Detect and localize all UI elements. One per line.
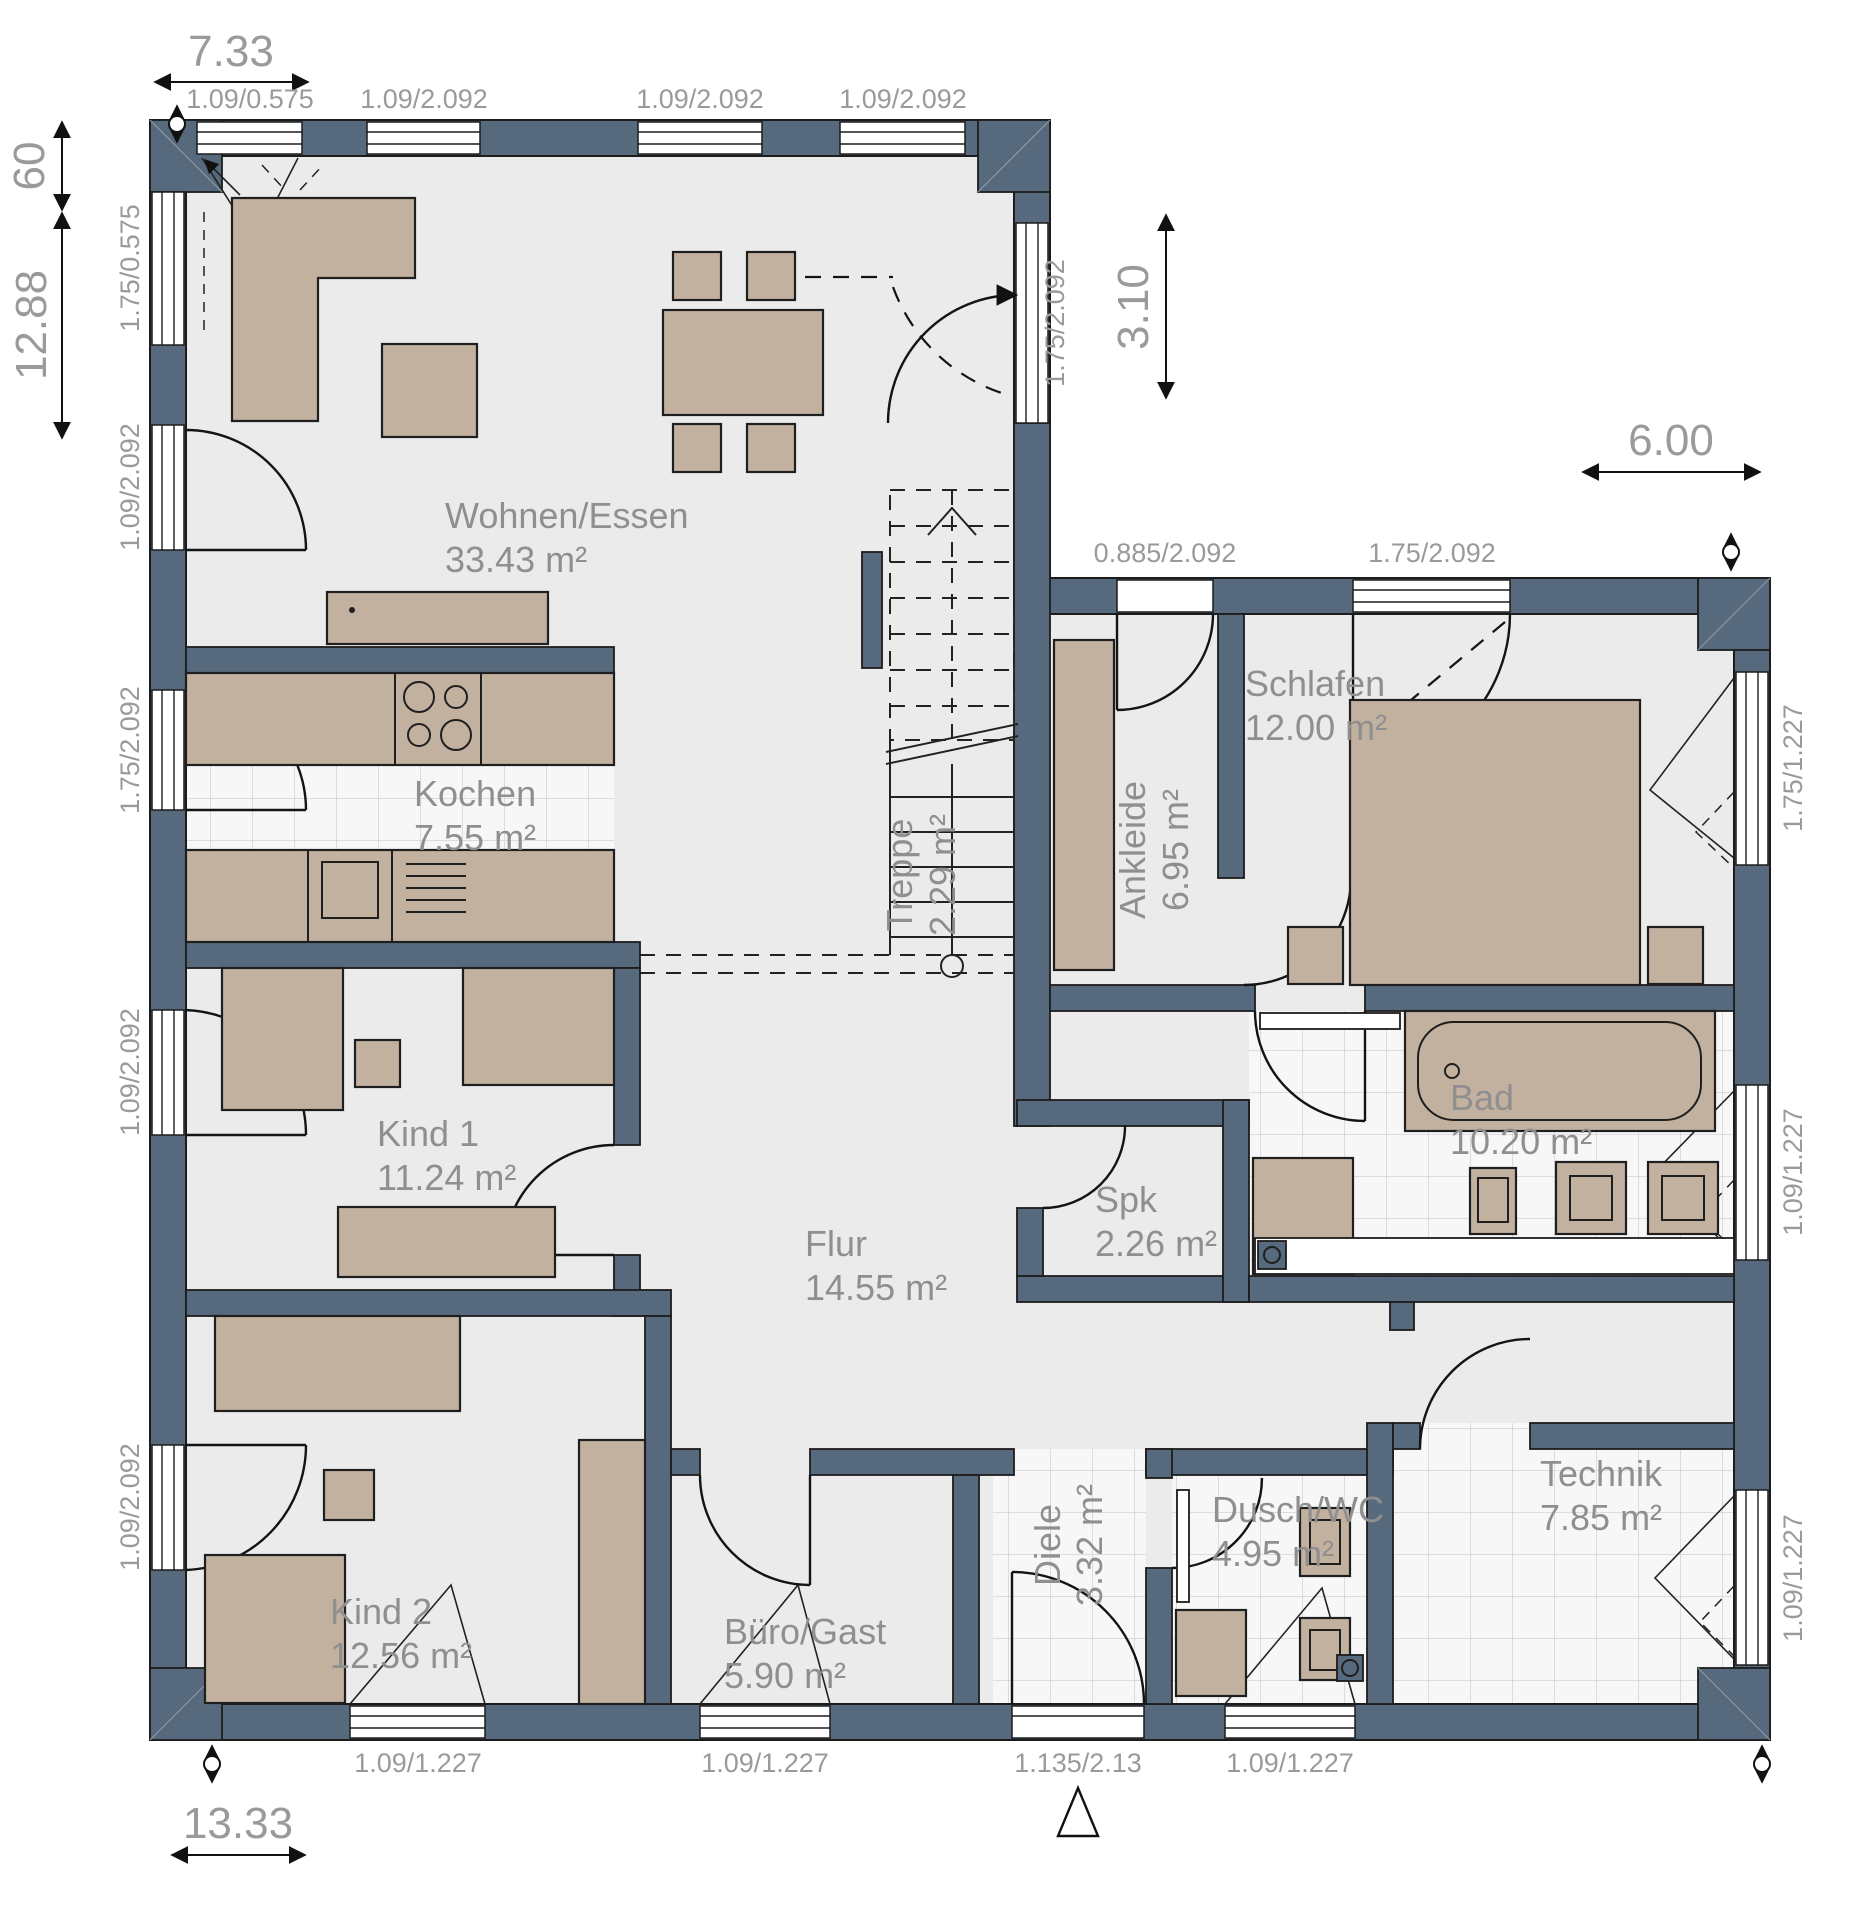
window-technik-right [1736, 1490, 1768, 1665]
opening-size-label: 1.75/2.092 [115, 686, 145, 814]
room-name: Ankleide [1112, 781, 1153, 919]
tv-sideboard [327, 592, 548, 644]
window-kind2-left [152, 1445, 184, 1570]
door-kochen-terrace [152, 690, 184, 810]
opening-size-label: 1.09/1.227 [354, 1748, 482, 1778]
opening-size-label: 1.09/2.092 [115, 1008, 145, 1136]
room-name: Schlafen [1245, 663, 1385, 704]
bed [1350, 700, 1640, 985]
room-name: Treppe [879, 819, 920, 932]
room-name: Wohnen/Essen [445, 495, 689, 536]
window-top-1 [197, 122, 302, 154]
room-area: 7.85 m² [1540, 1497, 1662, 1538]
overall-dimension-label: 60 [5, 142, 54, 191]
survey-marker [1754, 1746, 1770, 1782]
floorplan-drawing: Wohnen/Essen33.43 m²Kochen7.55 m²Kind 11… [0, 0, 1860, 1908]
opening-size-label: 1.09/2.092 [360, 84, 488, 114]
opening-size-label: 1.75/0.575 [115, 204, 145, 332]
overall-dimension-label: 12.88 [7, 270, 56, 380]
kind1-wardrobe [222, 968, 343, 1110]
window-dusch-bottom [1225, 1706, 1355, 1738]
sink [1556, 1162, 1626, 1234]
floor-drain [1337, 1655, 1363, 1681]
kind1-desk [338, 1207, 555, 1277]
room-area: 4.95 m² [1212, 1533, 1334, 1574]
kind2-table [324, 1470, 374, 1520]
room-name: Bad [1450, 1077, 1514, 1118]
chair [747, 424, 795, 472]
room-area: 11.24 m² [377, 1157, 516, 1198]
floorplan-page: Wohnen/Essen33.43 m²Kochen7.55 m²Kind 11… [0, 0, 1860, 1908]
room-name: Kochen [414, 773, 536, 814]
room-area: 5.90 m² [724, 1655, 846, 1696]
room-name: Spk [1095, 1179, 1158, 1220]
room-area: 12.00 m² [1245, 707, 1387, 748]
nightstand [1648, 927, 1703, 984]
opening-size-label: 1.75/1.227 [1778, 704, 1808, 832]
overall-dimension-label: 6.00 [1628, 416, 1714, 465]
room-name: Technik [1540, 1453, 1663, 1494]
kind2-wardrobe [215, 1316, 460, 1411]
door-entrance [1012, 1706, 1144, 1738]
opening-size-label: 1.09/1.227 [1226, 1748, 1354, 1778]
room-area: 2.26 m² [1095, 1223, 1217, 1264]
nightstand [1288, 927, 1343, 984]
kitchen-counter-north [186, 673, 614, 765]
ankleide-wardrobe [1054, 640, 1114, 970]
opening-size-label: 1.09/1.227 [1778, 1514, 1808, 1642]
coffee-table [382, 344, 477, 437]
room-area: 3.32 m² [1069, 1484, 1110, 1606]
shower-tray [1176, 1610, 1246, 1696]
dusch-radiator [1177, 1490, 1189, 1602]
room-name: Kind 2 [330, 1591, 432, 1632]
dining-table [663, 310, 823, 415]
window-buero-bottom [700, 1706, 830, 1738]
overall-dimension-label: 3.10 [1109, 264, 1158, 350]
entrance-marker [1058, 1788, 1098, 1836]
kind1-bed [463, 968, 614, 1085]
toilet-bad [1470, 1168, 1516, 1234]
opening-size-label: 0.885/2.092 [1094, 538, 1237, 568]
opening-size-label: 1.09/2.092 [115, 423, 145, 551]
window-top-4 [840, 122, 965, 154]
room-area: 10.20 m² [1450, 1121, 1592, 1162]
room-area: 6.95 m² [1155, 789, 1196, 911]
room-area: 2.29 m² [922, 814, 963, 936]
room-name: Flur [805, 1223, 867, 1264]
chair [747, 252, 795, 300]
window-top-2 [367, 122, 480, 154]
room-name: Dusch/WC [1212, 1489, 1384, 1530]
room-area: 7.55 m² [414, 817, 536, 858]
door-ankleide-exterior [1117, 580, 1213, 612]
kind2-tall-wardrobe [579, 1440, 645, 1704]
kind1-table [355, 1040, 400, 1087]
window-kind1 [152, 1010, 184, 1135]
opening-size-label: 1.09/1.227 [1778, 1108, 1808, 1236]
door-schlafen-terrace [1353, 580, 1510, 612]
chair [673, 252, 721, 300]
window-bad-right [1736, 1085, 1768, 1260]
opening-size-label: 1.135/2.13 [1014, 1748, 1142, 1778]
opening-size-label: 1.09/2.092 [636, 84, 764, 114]
room-area: 33.43 m² [445, 539, 587, 580]
room-name: Kind 1 [377, 1113, 479, 1154]
vanity-counter [1255, 1238, 1734, 1274]
chair [673, 424, 721, 472]
room-area: 12.56 m² [330, 1635, 472, 1676]
sink [1648, 1162, 1718, 1234]
window-kind2-bottom [350, 1706, 485, 1738]
room-area: 14.55 m² [805, 1267, 947, 1308]
survey-marker [204, 1746, 220, 1782]
room-name: Büro/Gast [724, 1611, 886, 1652]
window-left-corner [152, 192, 184, 345]
door-wohnen-left [152, 425, 184, 550]
opening-size-label: 1.09/2.092 [115, 1443, 145, 1571]
overall-dimension-label: 7.33 [188, 27, 274, 76]
bad-radiator [1260, 1013, 1400, 1029]
window-top-3 [638, 122, 762, 154]
opening-size-label: 1.75/2.092 [1040, 259, 1070, 387]
kitchen-counter-south [186, 850, 614, 942]
window-schlafen-right [1736, 672, 1768, 865]
room-name: Diele [1027, 1504, 1068, 1586]
opening-size-label: 1.09/0.575 [186, 84, 314, 114]
overall-dimension-label: 13.33 [183, 1799, 293, 1848]
survey-marker [1723, 534, 1739, 570]
opening-size-label: 1.09/1.227 [701, 1748, 829, 1778]
opening-size-label: 1.09/2.092 [839, 84, 967, 114]
kind2-bed [205, 1555, 345, 1703]
opening-size-label: 1.75/2.092 [1368, 538, 1496, 568]
